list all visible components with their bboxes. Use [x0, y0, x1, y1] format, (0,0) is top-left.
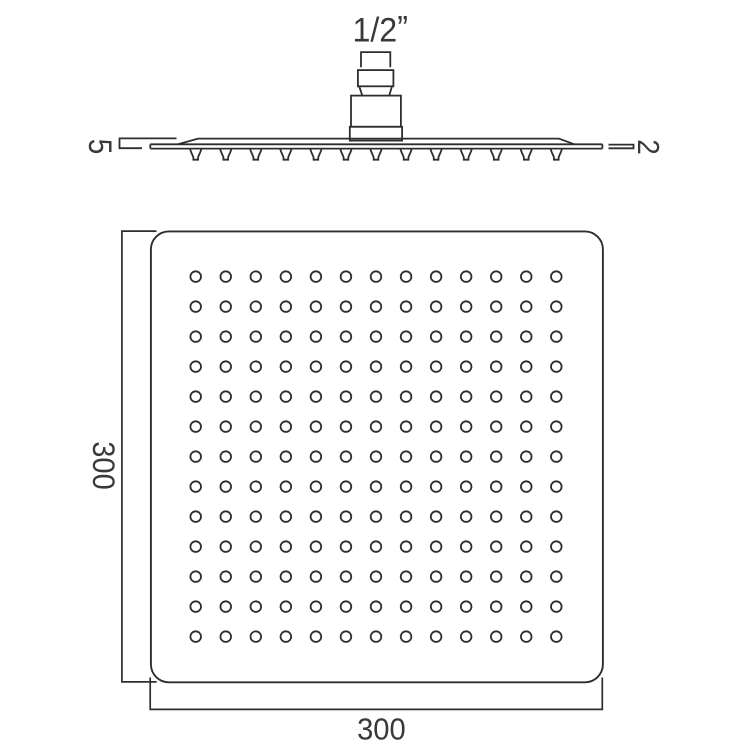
svg-text:300: 300 — [86, 441, 122, 490]
svg-text:5: 5 — [82, 139, 118, 155]
svg-text:1/2”: 1/2” — [352, 10, 408, 50]
svg-text:300: 300 — [357, 712, 406, 747]
svg-text:2: 2 — [631, 139, 666, 155]
